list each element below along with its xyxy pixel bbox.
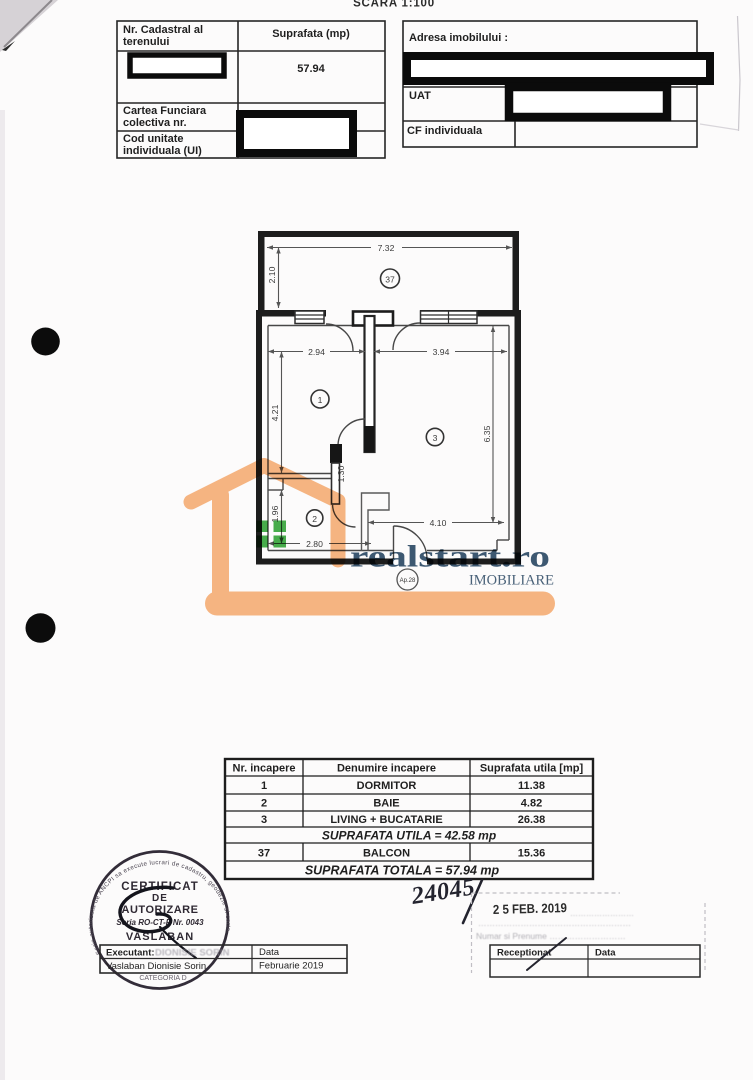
svg-text:terenului: terenului xyxy=(123,36,169,48)
svg-text:IMOBILIARE: IMOBILIARE xyxy=(469,573,554,589)
svg-text:DORMITOR: DORMITOR xyxy=(357,780,417,792)
svg-text:SCARA 1:100: SCARA 1:100 xyxy=(353,0,435,10)
svg-text:LIVING + BUCATARIE: LIVING + BUCATARIE xyxy=(330,814,442,826)
svg-text:1.96: 1.96 xyxy=(270,505,280,522)
svg-text:11.38: 11.38 xyxy=(518,780,545,792)
svg-text:Executant:: Executant: xyxy=(106,948,155,959)
svg-text:Denumire incapere: Denumire incapere xyxy=(337,763,436,775)
svg-text:3.94: 3.94 xyxy=(433,347,450,357)
svg-text:CATEGORIA D: CATEGORIA D xyxy=(139,975,186,982)
svg-text:……………………: …………………… xyxy=(570,909,634,918)
svg-text:2: 2 xyxy=(261,798,267,810)
svg-text:7.32: 7.32 xyxy=(378,243,395,253)
svg-text:BALCON: BALCON xyxy=(363,848,410,860)
svg-text:………………………………………………: ……………………………………………… xyxy=(478,918,631,928)
svg-text:4.82: 4.82 xyxy=(521,798,542,810)
svg-text:Data: Data xyxy=(595,948,616,959)
svg-text:Numar si Prenume ………………………: Numar si Prenume ……………………… xyxy=(476,931,626,941)
svg-text:realstart.ro: realstart.ro xyxy=(350,539,550,574)
svg-text:26.38: 26.38 xyxy=(518,814,546,826)
svg-text:Ap.28: Ap.28 xyxy=(400,578,416,584)
svg-text:3: 3 xyxy=(261,814,267,826)
svg-text:Data: Data xyxy=(259,947,280,958)
svg-text:Cartea Funciara: Cartea Funciara xyxy=(123,105,207,117)
svg-text:1.30: 1.30 xyxy=(336,465,346,482)
svg-text:BAIE: BAIE xyxy=(373,798,399,810)
svg-text:SUPRAFATA UTILA = 42.58 mp: SUPRAFATA UTILA = 42.58 mp xyxy=(322,829,496,843)
svg-text:4.10: 4.10 xyxy=(430,518,447,528)
svg-text:DIONISIE SORIN: DIONISIE SORIN xyxy=(155,948,230,959)
svg-text:DE: DE xyxy=(152,893,168,904)
svg-text:Cod unitate: Cod unitate xyxy=(123,133,184,145)
svg-text:colectiva nr.: colectiva nr. xyxy=(123,117,187,129)
svg-text:3: 3 xyxy=(433,433,438,443)
svg-text:1: 1 xyxy=(318,395,323,405)
svg-text:Suprafata utila [mp]: Suprafata utila [mp] xyxy=(480,763,584,775)
svg-text:VASLABAN: VASLABAN xyxy=(126,931,194,943)
svg-text:2: 2 xyxy=(312,514,317,524)
svg-text:1: 1 xyxy=(261,780,267,792)
svg-text:6.35: 6.35 xyxy=(482,425,492,442)
svg-text:Februarie 2019: Februarie 2019 xyxy=(259,961,323,972)
svg-text:57.94: 57.94 xyxy=(297,63,325,75)
svg-text:37: 37 xyxy=(385,275,395,285)
svg-text:37: 37 xyxy=(258,848,270,860)
svg-text:Nr. incapere: Nr. incapere xyxy=(233,763,296,775)
svg-text:15.36: 15.36 xyxy=(518,848,546,860)
svg-text:Nr. Cadastral al: Nr. Cadastral al xyxy=(123,24,203,36)
svg-text:CF individuala: CF individuala xyxy=(407,125,483,137)
svg-text:4.21: 4.21 xyxy=(270,404,280,421)
svg-text:Adresa imobilului :: Adresa imobilului : xyxy=(409,32,508,44)
svg-text:UAT: UAT xyxy=(409,90,431,102)
svg-text:2.80: 2.80 xyxy=(306,539,323,549)
svg-text:individuala (UI): individuala (UI) xyxy=(123,145,202,157)
svg-text:2.10: 2.10 xyxy=(267,266,277,283)
svg-text:Vaslaban Dionisie Sorin: Vaslaban Dionisie Sorin xyxy=(106,961,206,972)
svg-text:2 5 FEB. 2019: 2 5 FEB. 2019 xyxy=(493,900,567,917)
svg-text:2.94: 2.94 xyxy=(308,347,325,357)
svg-text:Suprafata (mp): Suprafata (mp) xyxy=(272,28,350,40)
